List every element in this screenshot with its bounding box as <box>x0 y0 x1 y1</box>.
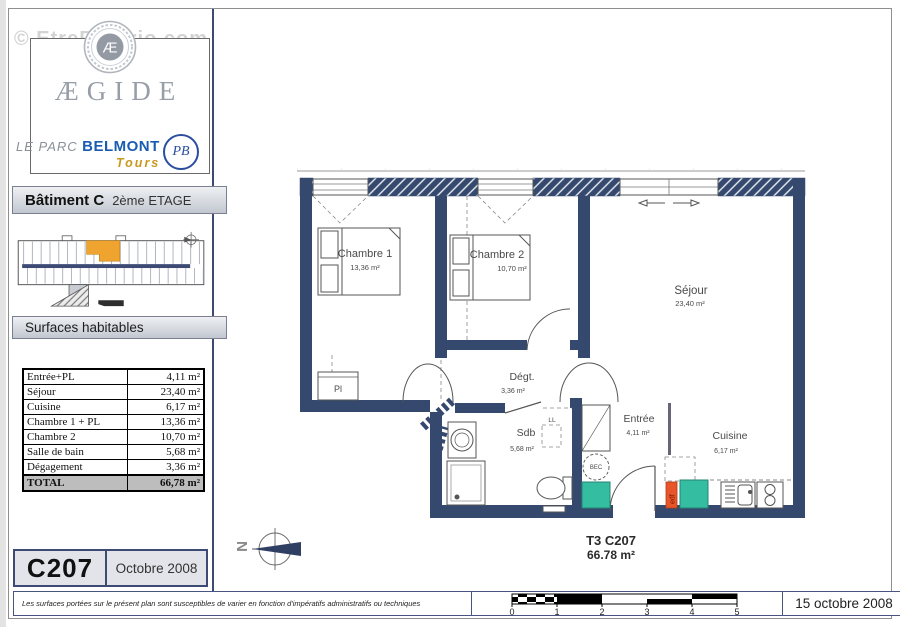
window-chambre2 <box>478 179 533 195</box>
building-floor-header: Bâtiment C 2ème ETAGE <box>12 186 227 214</box>
plan-date: 15 octobre 2008 <box>782 591 900 616</box>
building-label: Bâtiment C <box>25 192 104 209</box>
residence-prefix: LE PARC <box>16 139 78 154</box>
row-value: 5,68 m² <box>128 445 204 460</box>
shaft-cupboard <box>582 405 610 451</box>
technical-shaft-2 <box>680 480 708 508</box>
lave-linge-label: LL <box>548 417 556 424</box>
room-area-sejour: 23,40 m² <box>675 299 705 308</box>
row-value: 4,11 m² <box>128 369 204 385</box>
footer-strip: Les surfaces portées sur le présent plan… <box>13 591 900 616</box>
unit-plan-date: Octobre 2008 <box>105 549 208 587</box>
total-value: 66,78 m² <box>128 475 204 491</box>
scale-tick-2: 2 <box>599 607 604 616</box>
sliding-direction-arrows <box>639 200 699 206</box>
door-degagement-sejour <box>560 363 618 402</box>
technical-shaft-1 <box>582 482 610 508</box>
unit-number: C207 <box>13 549 107 587</box>
sidebar-divider <box>212 9 214 591</box>
residence-name-line: LE PARC BELMONT <box>16 138 160 156</box>
plan-geometry: edf Chambre 1 13,36 m² Chambre <box>297 169 805 518</box>
sliding-bay-window-sejour <box>620 179 718 206</box>
placard-label: Pl <box>334 384 342 394</box>
row-value: 23,40 m² <box>128 385 204 400</box>
surfaces-table: Entrée+PL 4,11 m² Séjour 23,40 m² Cuisin… <box>22 368 205 492</box>
floor-plan-sheet: © EtreProprio.com Æ ÆGIDE LE PARC BELMON… <box>0 0 900 627</box>
room-area-sdb: 5,68 m² <box>510 446 534 453</box>
row-label: Entrée+PL <box>23 369 128 385</box>
unit-identity-row: C207 Octobre 2008 <box>13 549 208 587</box>
table-row: Entrée+PL 4,11 m² <box>23 369 204 385</box>
brand-name: ÆGIDE <box>30 76 208 107</box>
door-entrance <box>610 466 655 511</box>
aegide-medallion-icon: Æ <box>83 20 137 79</box>
table-row: Salle de bain 5,68 m² <box>23 445 204 460</box>
apartment-floor-plan: edf Chambre 1 13,36 m² Chambre <box>225 165 815 585</box>
disclaimer-text: Les surfaces portées sur le présent plan… <box>13 591 472 616</box>
table-row: Chambre 2 10,70 m² <box>23 430 204 445</box>
entree-cuisine-partition <box>668 403 671 455</box>
room-label-cuisine: Cuisine <box>712 430 747 442</box>
room-label-entree: Entrée <box>624 413 655 425</box>
row-label: Chambre 1 + PL <box>23 415 128 430</box>
scale-tick-5: 5 <box>734 607 739 616</box>
room-area-entree: 4,11 m² <box>626 430 650 437</box>
scale-tick-4: 4 <box>689 607 694 616</box>
washbasin-unit <box>448 422 476 458</box>
room-area-chambre2: 10,70 m² <box>497 264 527 273</box>
room-label-sejour: Séjour <box>674 285 707 297</box>
compass-north-letter: N <box>233 541 250 552</box>
scan-edge-shadow <box>0 0 6 627</box>
bec-label: BEC <box>590 465 603 471</box>
unit-summary-type: T3 C207 <box>586 533 636 548</box>
scale-tick-3: 3 <box>644 607 649 616</box>
shower-tray <box>447 461 485 505</box>
door-degagement-west <box>403 364 453 402</box>
surfaces-title-label: Surfaces habitables <box>25 320 144 335</box>
table-row: Cuisine 6,17 m² <box>23 400 204 415</box>
kitchen-sink <box>721 482 755 508</box>
row-label: Salle de bain <box>23 445 128 460</box>
unit-summary-area: 66.78 m² <box>587 548 635 562</box>
parc-belmont-monogram-icon: PB <box>163 134 199 170</box>
monogram-letters: PB <box>172 144 189 160</box>
room-area-chambre1: 13,36 m² <box>350 263 380 272</box>
row-label: Séjour <box>23 385 128 400</box>
scale-tick-1: 1 <box>554 607 559 616</box>
room-area-degagement: 3,36 m² <box>501 388 525 395</box>
fridge-slot <box>665 457 695 481</box>
room-area-cuisine: 6,17 m² <box>714 448 738 455</box>
room-label-sdb: Sdb <box>517 427 536 439</box>
room-label-chambre2: Chambre 2 <box>470 249 524 261</box>
table-total-row: TOTAL 66,78 m² <box>23 475 204 491</box>
scale-bar: 0 1 2 3 4 5 <box>471 591 783 616</box>
row-value: 10,70 m² <box>128 430 204 445</box>
medallion-letter: Æ <box>103 40 118 57</box>
residence-name: BELMONT <box>82 138 160 155</box>
lave-linge-slot <box>542 425 561 447</box>
row-value: 6,17 m² <box>128 400 204 415</box>
floor-label: 2ème ETAGE <box>112 193 191 208</box>
room-label-chambre1: Chambre 1 <box>338 248 392 260</box>
surfaces-section-title: Surfaces habitables <box>12 316 227 339</box>
scale-tick-0: 0 <box>509 607 514 616</box>
door-sdb-leaf <box>505 402 541 413</box>
room-label-degagement: Dégt. <box>509 371 534 383</box>
edf-label: edf <box>670 494 677 504</box>
total-label: TOTAL <box>23 475 128 491</box>
north-compass-icon: N <box>233 528 301 570</box>
table-row: Dégagement 3,36 m² <box>23 460 204 476</box>
row-label: Dégagement <box>23 460 128 476</box>
table-row: Séjour 23,40 m² <box>23 385 204 400</box>
residence-city: Tours <box>116 156 160 170</box>
row-label: Chambre 2 <box>23 430 128 445</box>
kitchen-stove <box>757 482 783 508</box>
row-label: Cuisine <box>23 400 128 415</box>
door-chambre2 <box>527 309 570 350</box>
bed-chambre1 <box>318 228 400 295</box>
window-chambre1 <box>313 179 368 195</box>
building-minimap <box>14 228 210 317</box>
minimap-entrance-arrow <box>98 300 123 306</box>
row-value: 3,36 m² <box>128 460 204 476</box>
row-value: 13,36 m² <box>128 415 204 430</box>
table-row: Chambre 1 + PL 13,36 m² <box>23 415 204 430</box>
